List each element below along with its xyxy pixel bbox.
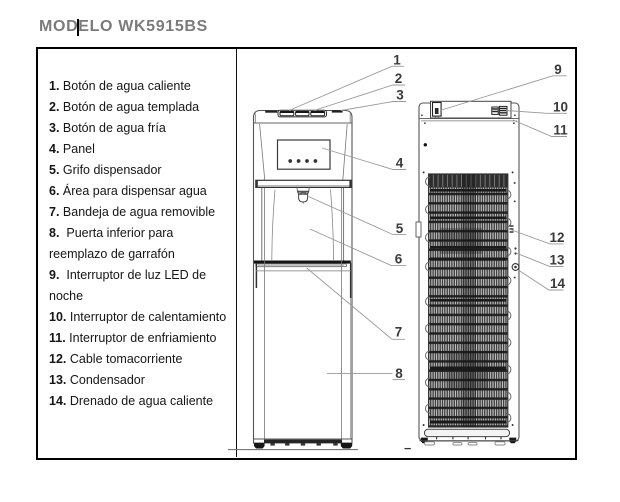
svg-text:13: 13	[549, 253, 565, 268]
svg-text:1: 1	[393, 53, 401, 68]
svg-text:3: 3	[396, 88, 404, 103]
svg-text:8: 8	[395, 366, 403, 381]
svg-text:5: 5	[396, 221, 404, 236]
svg-text:14: 14	[550, 276, 566, 291]
svg-text:12: 12	[549, 230, 564, 245]
svg-text:6: 6	[395, 252, 403, 267]
svg-text:10: 10	[553, 100, 568, 115]
svg-text:9: 9	[554, 62, 562, 77]
svg-text:4: 4	[396, 156, 404, 171]
svg-text:2: 2	[395, 71, 403, 86]
svg-text:11: 11	[553, 123, 568, 138]
svg-text:7: 7	[395, 325, 403, 340]
